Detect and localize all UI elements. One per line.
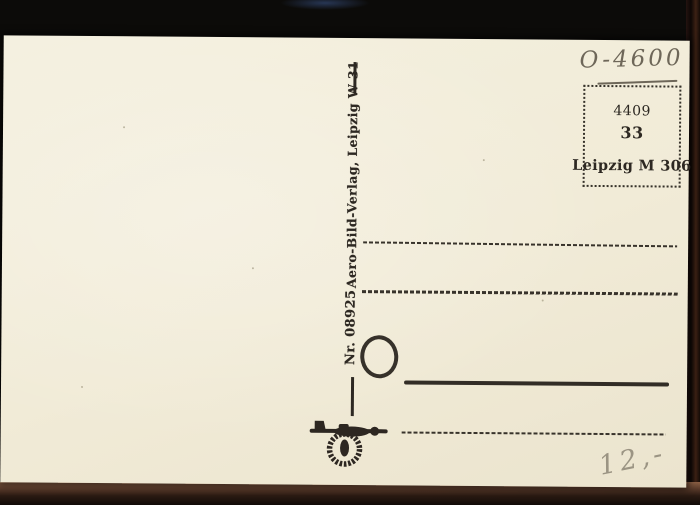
scan-background: O-4600 4409 33 Leipzig M 306 Aero-Bild-V… xyxy=(0,0,700,505)
stamp-box: 4409 33 Leipzig M 306 xyxy=(583,85,682,188)
stamp-box-city: Leipzig M 306 xyxy=(572,157,691,175)
address-line-1 xyxy=(363,241,677,247)
handwritten-postal-code: O-4600 xyxy=(579,45,684,74)
address-line-4 xyxy=(402,431,666,435)
paper-speck xyxy=(252,267,254,269)
paper-speck xyxy=(123,126,125,128)
serial-number: Nr. 08925 xyxy=(343,290,359,366)
stamp-box-code: 4409 xyxy=(613,103,651,119)
address-line-3 xyxy=(404,380,669,386)
address-line-2 xyxy=(362,290,678,295)
scanner-glare xyxy=(280,0,370,10)
postcard: O-4600 4409 33 Leipzig M 306 Aero-Bild-V… xyxy=(0,35,689,487)
handwritten-price: 12,- xyxy=(596,438,669,482)
divider-line-bottom xyxy=(351,377,354,416)
paper-speck xyxy=(483,159,485,161)
postmark-circle xyxy=(359,334,400,379)
handwritten-underline xyxy=(597,80,677,85)
paper-speck xyxy=(81,386,83,388)
stamp-box-number: 33 xyxy=(620,124,643,142)
airplane-wreath-logo-icon xyxy=(308,416,388,469)
publisher-imprint: Aero-Bild-Verlag, Leipzig W 31 xyxy=(344,61,361,288)
paper-speck xyxy=(542,300,544,302)
